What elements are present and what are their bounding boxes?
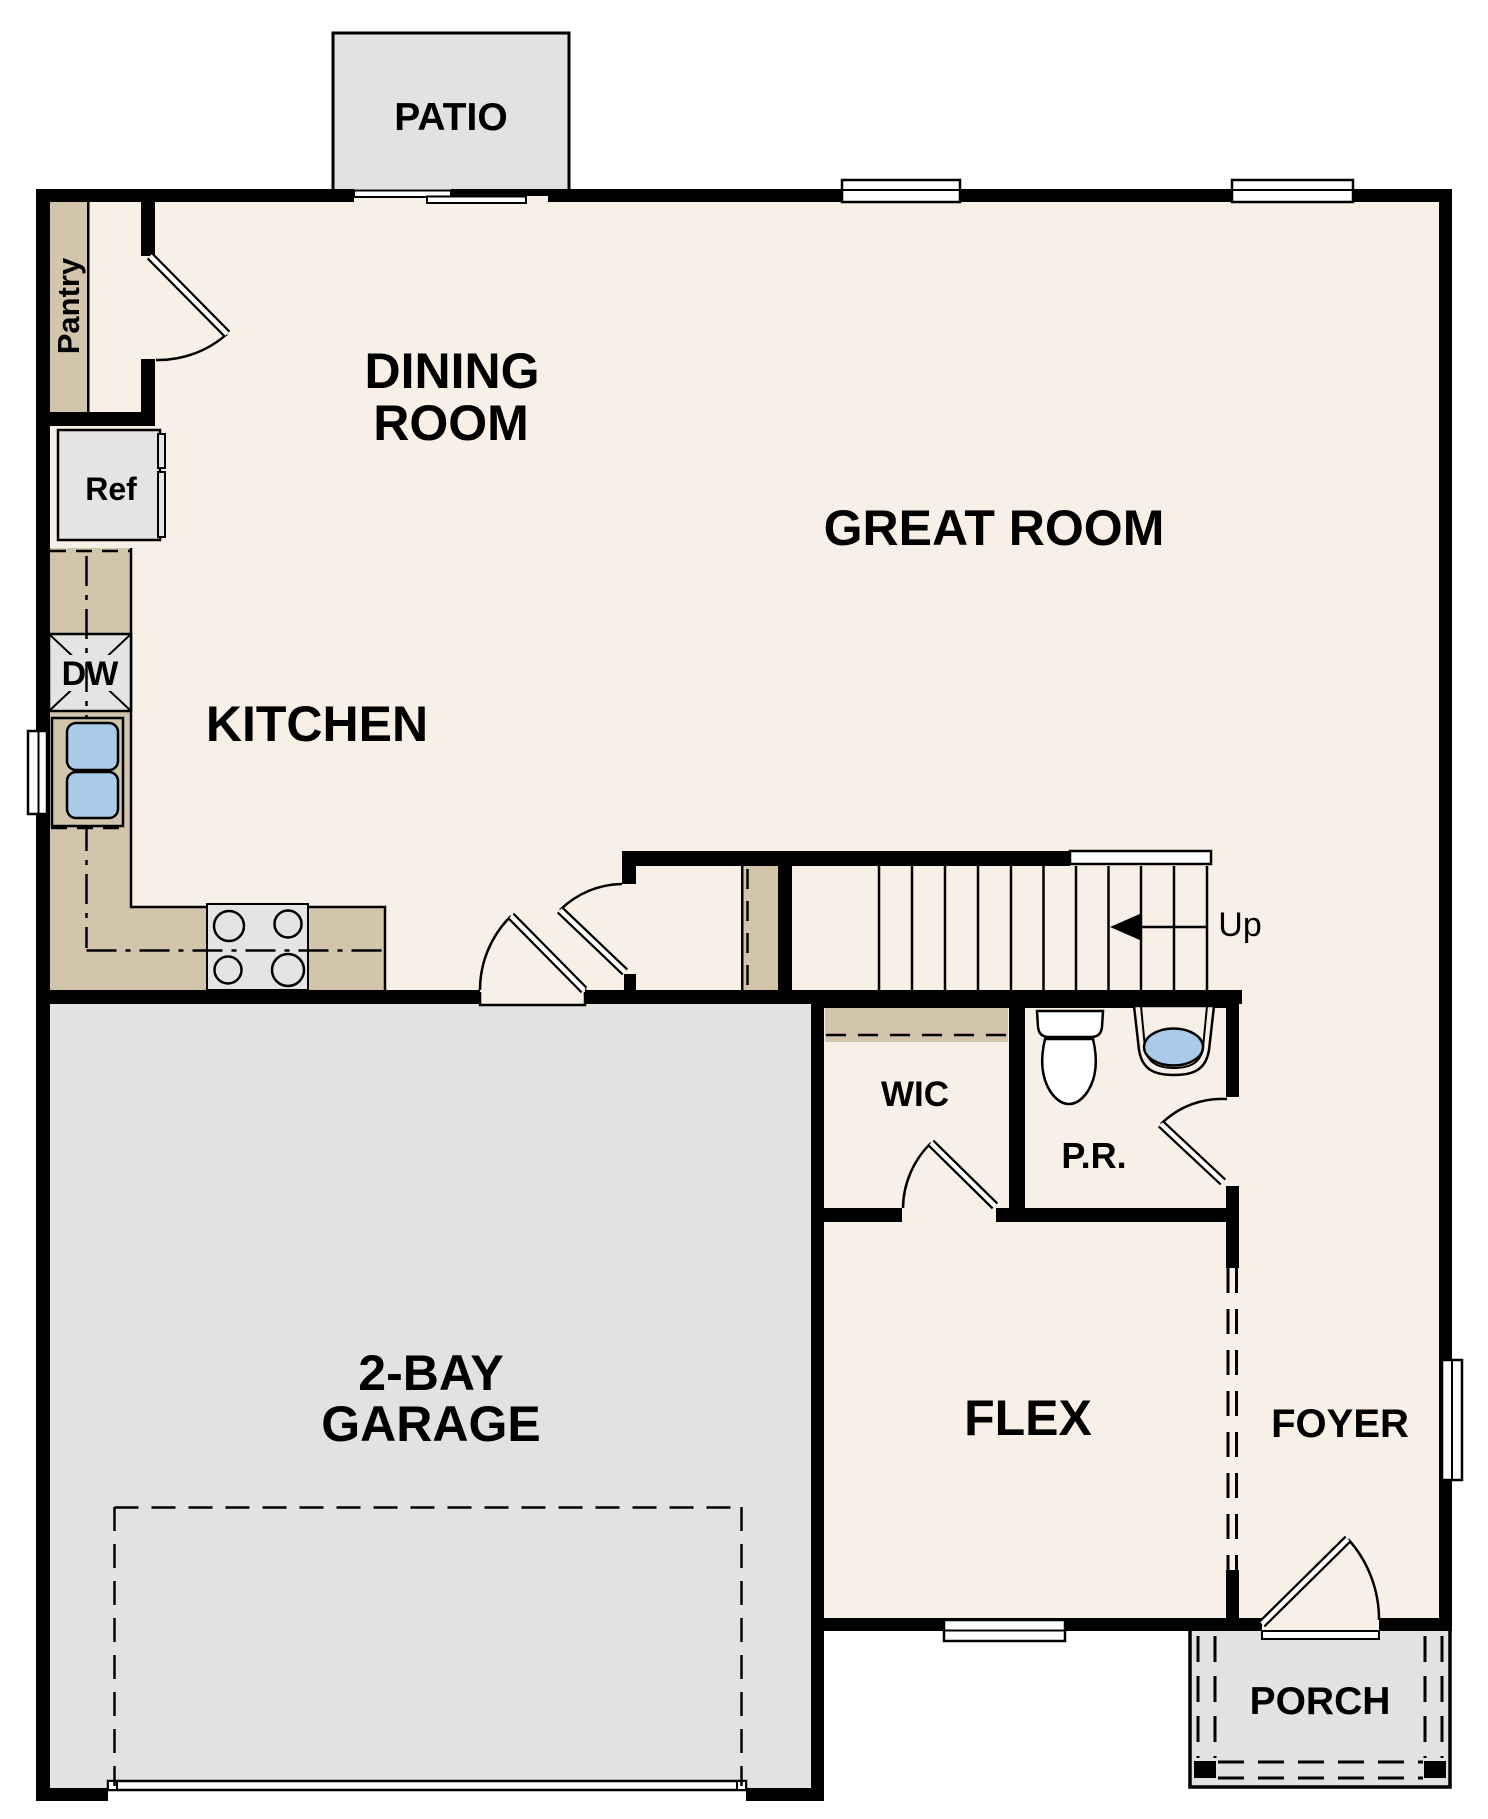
svg-text:GARAGE: GARAGE (321, 1396, 540, 1452)
svg-text:Pantry: Pantry (51, 257, 86, 354)
svg-text:GREAT ROOM: GREAT ROOM (824, 500, 1165, 556)
svg-text:PATIO: PATIO (394, 96, 507, 139)
svg-text:DINING: DINING (365, 343, 540, 399)
svg-text:P.R.: P.R. (1061, 1135, 1126, 1176)
svg-text:Up: Up (1218, 906, 1261, 944)
svg-text:Ref: Ref (85, 471, 137, 507)
svg-text:DW: DW (62, 655, 120, 693)
svg-text:FLEX: FLEX (964, 1390, 1092, 1446)
svg-text:2-BAY: 2-BAY (358, 1345, 503, 1401)
svg-text:FOYER: FOYER (1271, 1402, 1409, 1446)
svg-text:ROOM: ROOM (373, 395, 529, 451)
svg-text:PORCH: PORCH (1250, 1680, 1391, 1723)
svg-text:WIC: WIC (881, 1075, 949, 1114)
svg-text:KITCHEN: KITCHEN (206, 696, 428, 752)
